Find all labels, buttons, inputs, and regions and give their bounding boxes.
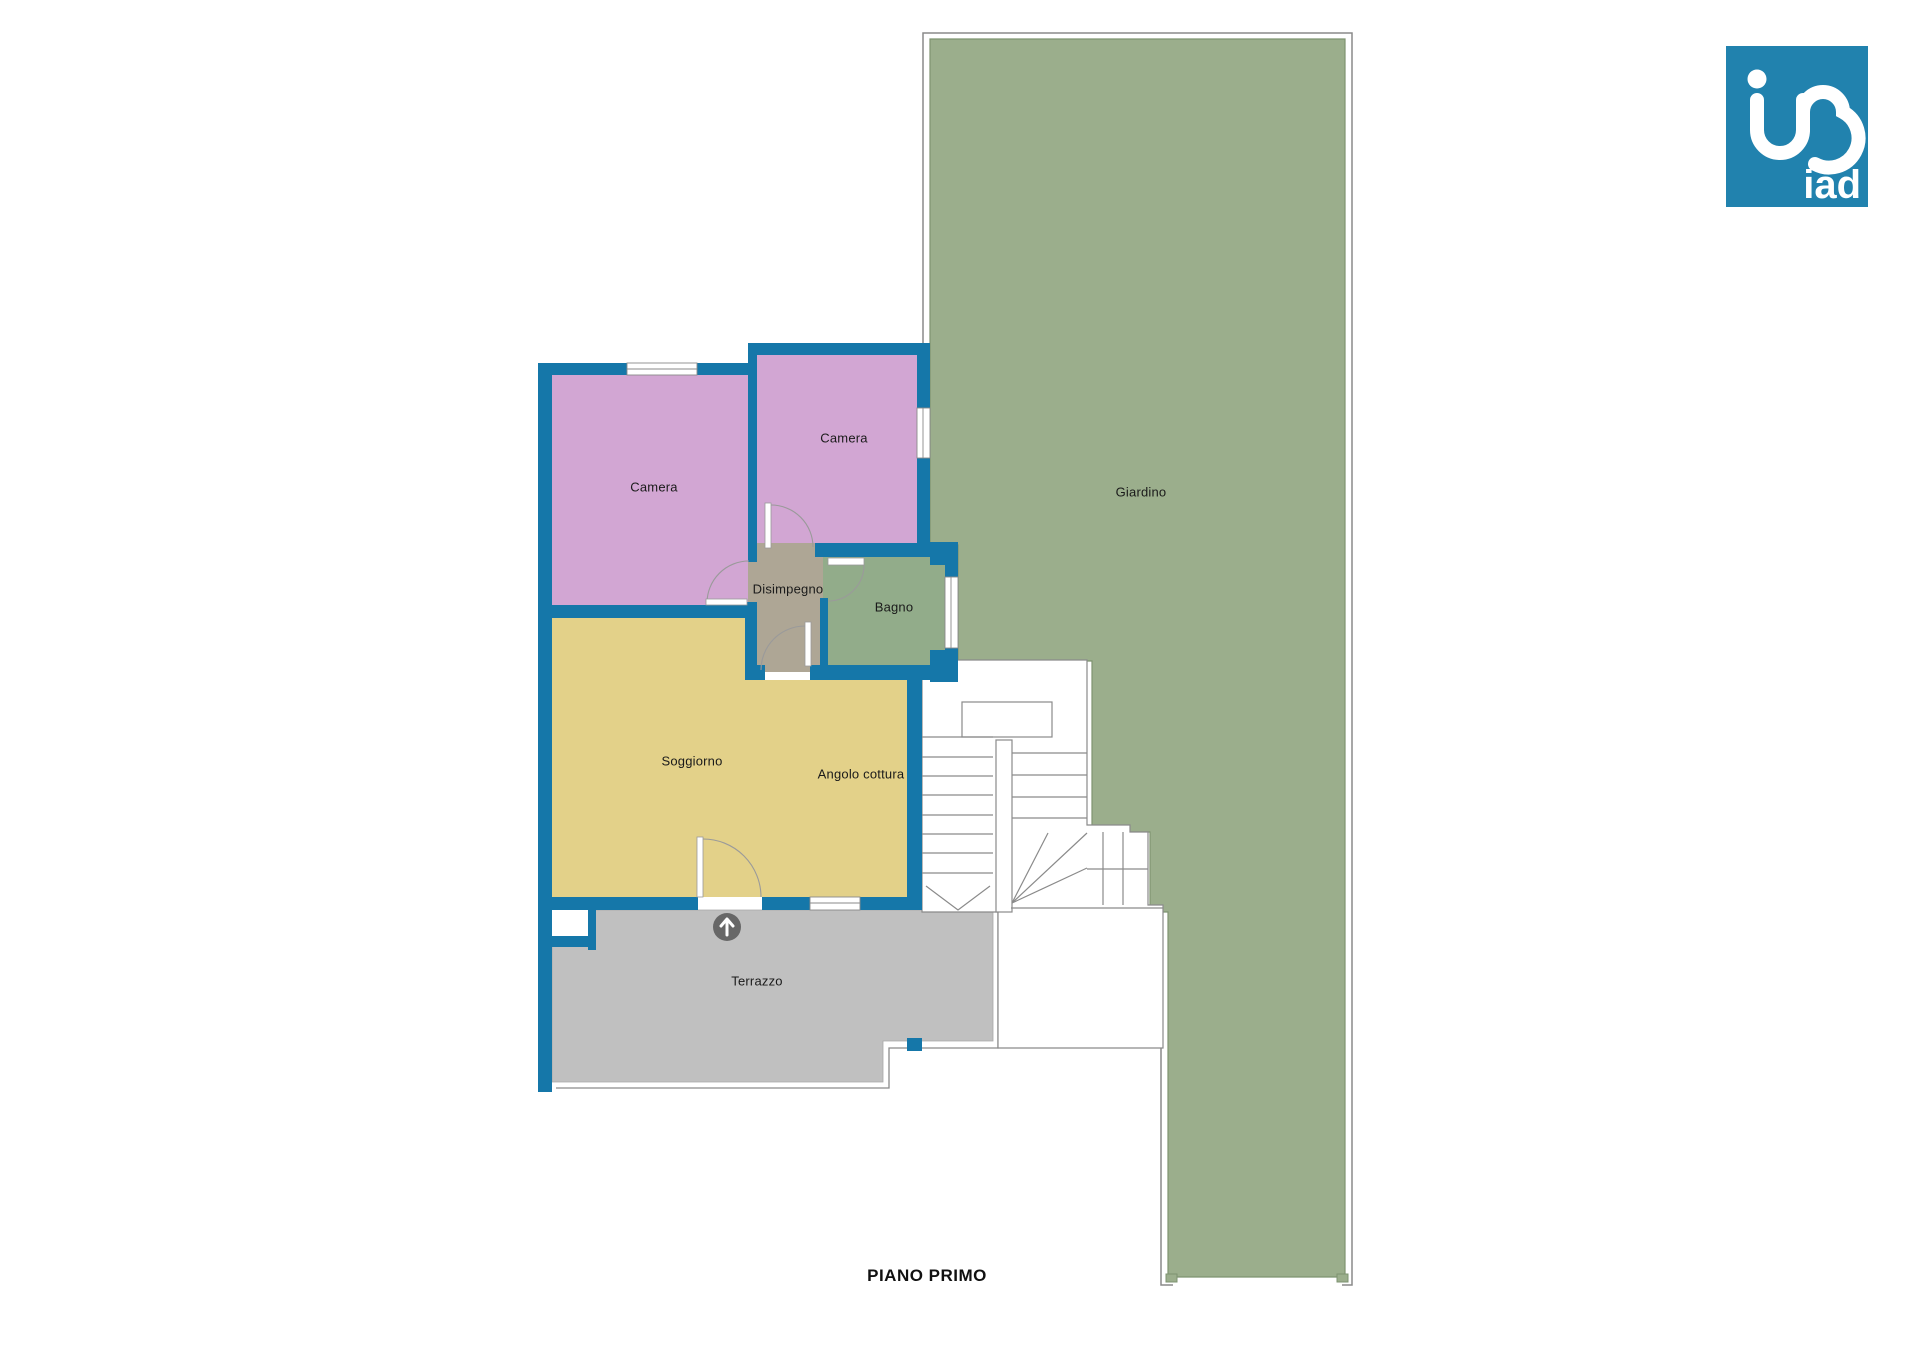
- window-camera1-top: [627, 363, 697, 375]
- window-bagno-right: [945, 577, 958, 648]
- wall-camera2-right-1: [917, 355, 930, 408]
- terrace-fill: [552, 910, 993, 1082]
- label-camera-1: Camera: [630, 480, 677, 495]
- wall-soggiorno-bottom-3: [860, 897, 922, 910]
- wall-disimpegno-bottom-1: [745, 665, 765, 680]
- label-angolo-cottura: Angolo cottura: [818, 767, 905, 782]
- wall-top-1: [538, 363, 627, 375]
- wall-camera1-bottom: [538, 605, 748, 618]
- window-soggiorno-bottom: [810, 897, 860, 910]
- garden-foot-left: [1166, 1274, 1177, 1282]
- wall-stair-corner: [930, 650, 958, 682]
- wall-bagno-right-1: [945, 555, 958, 577]
- room-disimpegno: [748, 543, 827, 672]
- wall-camera2-right-2: [917, 458, 930, 545]
- wall-soggiorno-bottom-1: [538, 897, 698, 910]
- label-terrazzo: Terrazzo: [731, 974, 782, 989]
- wall-left: [538, 363, 552, 1092]
- floorplan-page: Camera Camera Disimpegno Bagno Soggiorno…: [0, 0, 1920, 1358]
- label-bagno: Bagno: [875, 600, 914, 615]
- door-panel-bagno: [828, 558, 864, 565]
- door-panel-entrance: [697, 837, 703, 897]
- label-giardino: Giardino: [1116, 485, 1167, 500]
- room-camera-2: [757, 355, 917, 547]
- door-panel-soggiorno: [805, 622, 811, 666]
- iad-logo: iad: [1726, 46, 1868, 207]
- label-disimpegno: Disimpegno: [753, 582, 824, 597]
- entrance-arrow-icon: [713, 913, 741, 941]
- door-panel-camera2: [765, 503, 771, 548]
- label-camera-2: Camera: [820, 431, 867, 446]
- garden-foot-right: [1337, 1274, 1348, 1282]
- floorplan-drawing: [0, 0, 1920, 1358]
- terrace-area: [552, 910, 998, 1088]
- wall-terrace-notch-bottom: [552, 935, 596, 947]
- wall-soggiorno-bottom-2: [762, 897, 810, 910]
- wall-top-2: [697, 363, 748, 375]
- garden-area: [923, 33, 1352, 1285]
- floor-title: PIANO PRIMO: [867, 1266, 987, 1286]
- window-camera2-right: [917, 408, 930, 458]
- label-soggiorno: Soggiorno: [661, 754, 722, 769]
- garden-fill: [930, 39, 1345, 1277]
- wall-bagno-left: [820, 598, 828, 668]
- wall-divider-upper: [748, 355, 757, 562]
- wall-camera2-top: [748, 343, 930, 355]
- door-panel-camera1: [706, 599, 747, 605]
- wall-camera2-bottom: [815, 543, 945, 557]
- iad-logo-text: iad: [1803, 165, 1861, 205]
- stair-stringer: [996, 740, 1012, 912]
- wall-soggiorno-right: [907, 680, 922, 910]
- opening-terrace-left: [552, 910, 588, 936]
- wall-terrace-step-stub: [907, 1038, 922, 1051]
